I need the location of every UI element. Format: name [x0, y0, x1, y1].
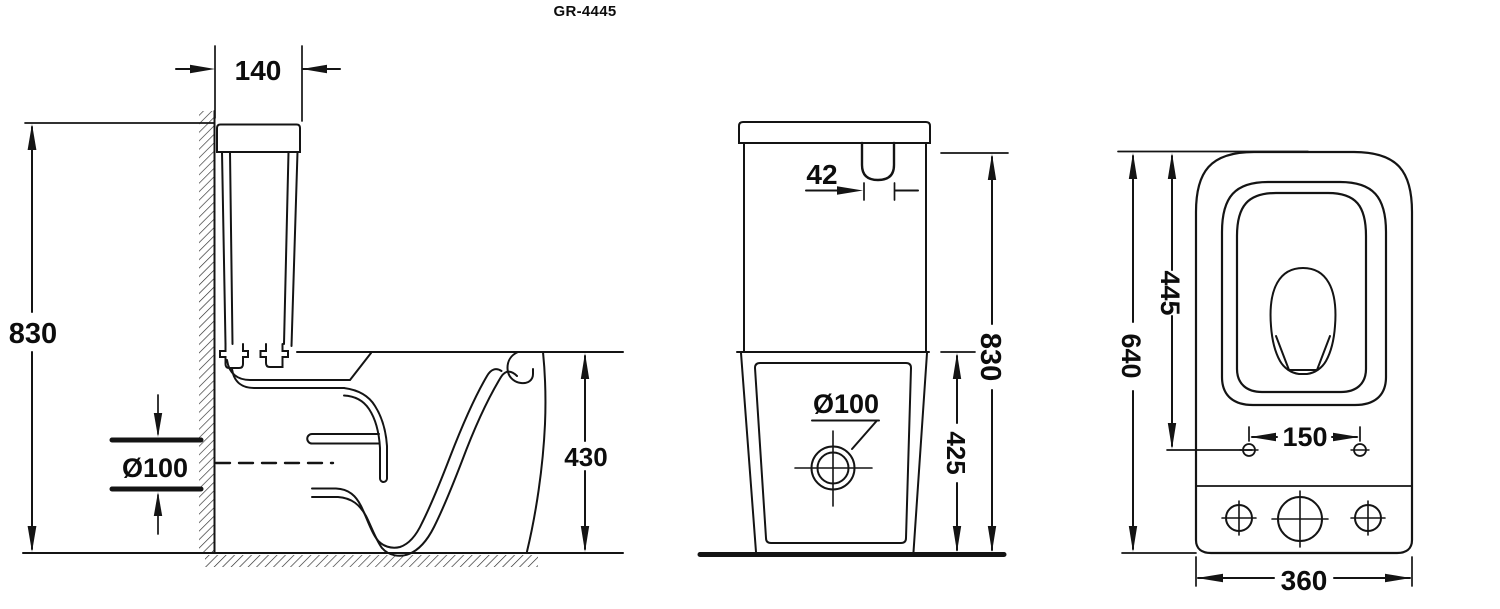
dim-fixing-hole-spacing-label: 150 — [1282, 422, 1327, 452]
dim-outlet-diameter-front-label: Ø100 — [813, 389, 879, 419]
dim-overall-height-label: 830 — [9, 318, 57, 350]
dim-overall-height-front-label: 830 — [974, 333, 1006, 381]
floor-hatch — [205, 555, 538, 567]
technical-drawing-page: GR-4445 — [0, 0, 1500, 609]
dim-flush-button-label: 42 — [806, 159, 837, 190]
dim-outlet-diameter-label: Ø100 — [122, 453, 188, 483]
drawing-canvas: GR-4445 — [0, 0, 1500, 609]
drawing-title: GR-4445 — [554, 3, 617, 20]
dim-seat-depth-label: 445 — [1155, 270, 1185, 315]
dim-overall-depth-label: 640 — [1116, 333, 1146, 378]
dim-bowl-height-front-label: 425 — [941, 431, 971, 474]
dim-overall-width-label: 360 — [1281, 565, 1328, 596]
dim-tank-depth-label: 140 — [235, 55, 282, 86]
dim-bowl-height-label: 430 — [564, 442, 607, 472]
